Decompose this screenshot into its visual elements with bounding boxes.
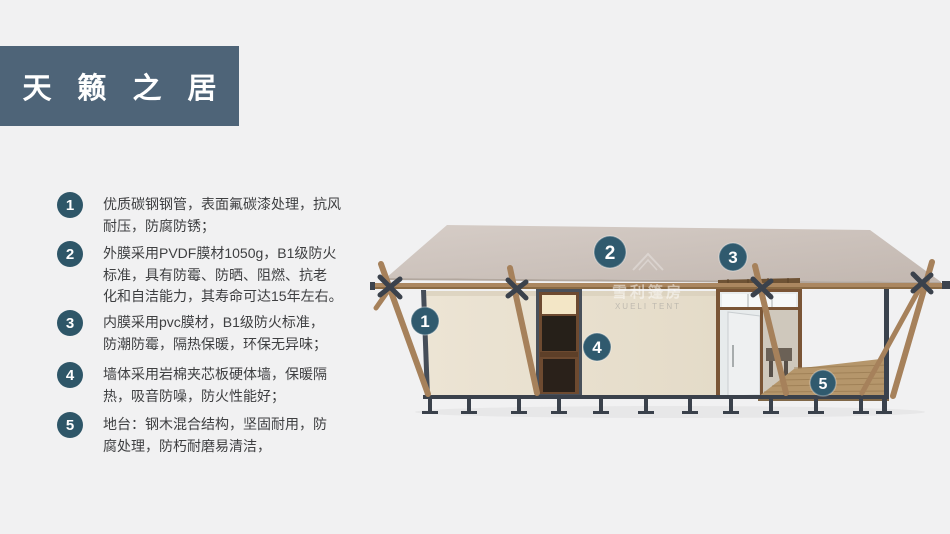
page-title: 天籁之居	[22, 65, 242, 107]
feature-number-badge: 1	[57, 192, 83, 218]
roof-membrane	[386, 225, 941, 282]
feature-item-2: 2 外膜采用PVDF膜材1050g，B1级防火 标准，具有防霉、防晒、阻燃、抗老…	[57, 241, 379, 308]
middle-door	[536, 289, 582, 397]
feature-number-badge: 4	[57, 362, 83, 388]
feature-number-badge: 3	[57, 310, 83, 336]
feature-text: 优质碳钢钢管，表面氟碳漆处理，抗风 耐压，防腐防锈；	[103, 194, 379, 237]
feature-text: 地台：钢木混合结构，坚固耐用，防 腐处理，防朽耐磨易清洁，	[103, 414, 379, 457]
feature-item-1: 1 优质碳钢钢管，表面氟碳漆处理，抗风 耐压，防腐防锈；	[57, 192, 379, 237]
slide: 天籁之居 1 优质碳钢钢管，表面氟碳漆处理，抗风 耐压，防腐防锈； 2 外膜采用…	[0, 0, 950, 534]
title-banner: 天籁之居	[0, 46, 239, 126]
tent-illustration: 雪利篷房 XUELI TENT 1 2 3 4 5	[370, 212, 950, 424]
callout-badge-2: 2	[594, 236, 626, 268]
callout-badge-3: 3	[719, 243, 747, 271]
corner-post	[884, 284, 889, 396]
watermark-text-en: XUELI TENT	[615, 302, 681, 311]
feature-item-3: 3 内膜采用pvc膜材，B1级防火标准， 防潮防霉，隔热保暖，环保无异味；	[57, 310, 379, 355]
feature-number-badge: 2	[57, 241, 83, 267]
callout-badge-5: 5	[810, 370, 836, 396]
badge-label: 2	[605, 243, 616, 264]
feature-number-badge: 5	[57, 412, 83, 438]
feature-text: 内膜采用pvc膜材，B1级防火标准， 防潮防霉，隔热保暖，环保无异味；	[103, 312, 379, 355]
feature-text: 外膜采用PVDF膜材1050g，B1级防火 标准，具有防霉、防晒、阻燃、抗老 化…	[103, 243, 379, 308]
badge-label: 1	[420, 312, 429, 331]
feature-item-4: 4 墙体采用岩棉夹芯板硬体墙，保暖隔 热，吸音防噪，防火性能好；	[57, 362, 379, 407]
ground-shadow	[415, 406, 925, 418]
feature-item-5: 5 地台：钢木混合结构，坚固耐用，防 腐处理，防朽耐磨易清洁，	[57, 412, 379, 457]
tent-render: 雪利篷房 XUELI TENT 1 2 3 4 5	[370, 212, 950, 424]
callout-badge-4: 4	[583, 333, 611, 361]
badge-label: 4	[592, 338, 602, 357]
callout-badge-1: 1	[411, 307, 439, 335]
badge-label: 5	[819, 376, 828, 393]
watermark-text-cn: 雪利篷房	[612, 283, 684, 301]
feature-text: 墙体采用岩棉夹芯板硬体墙，保暖隔 热，吸音防噪，防火性能好；	[103, 364, 379, 407]
badge-label: 3	[728, 248, 737, 267]
